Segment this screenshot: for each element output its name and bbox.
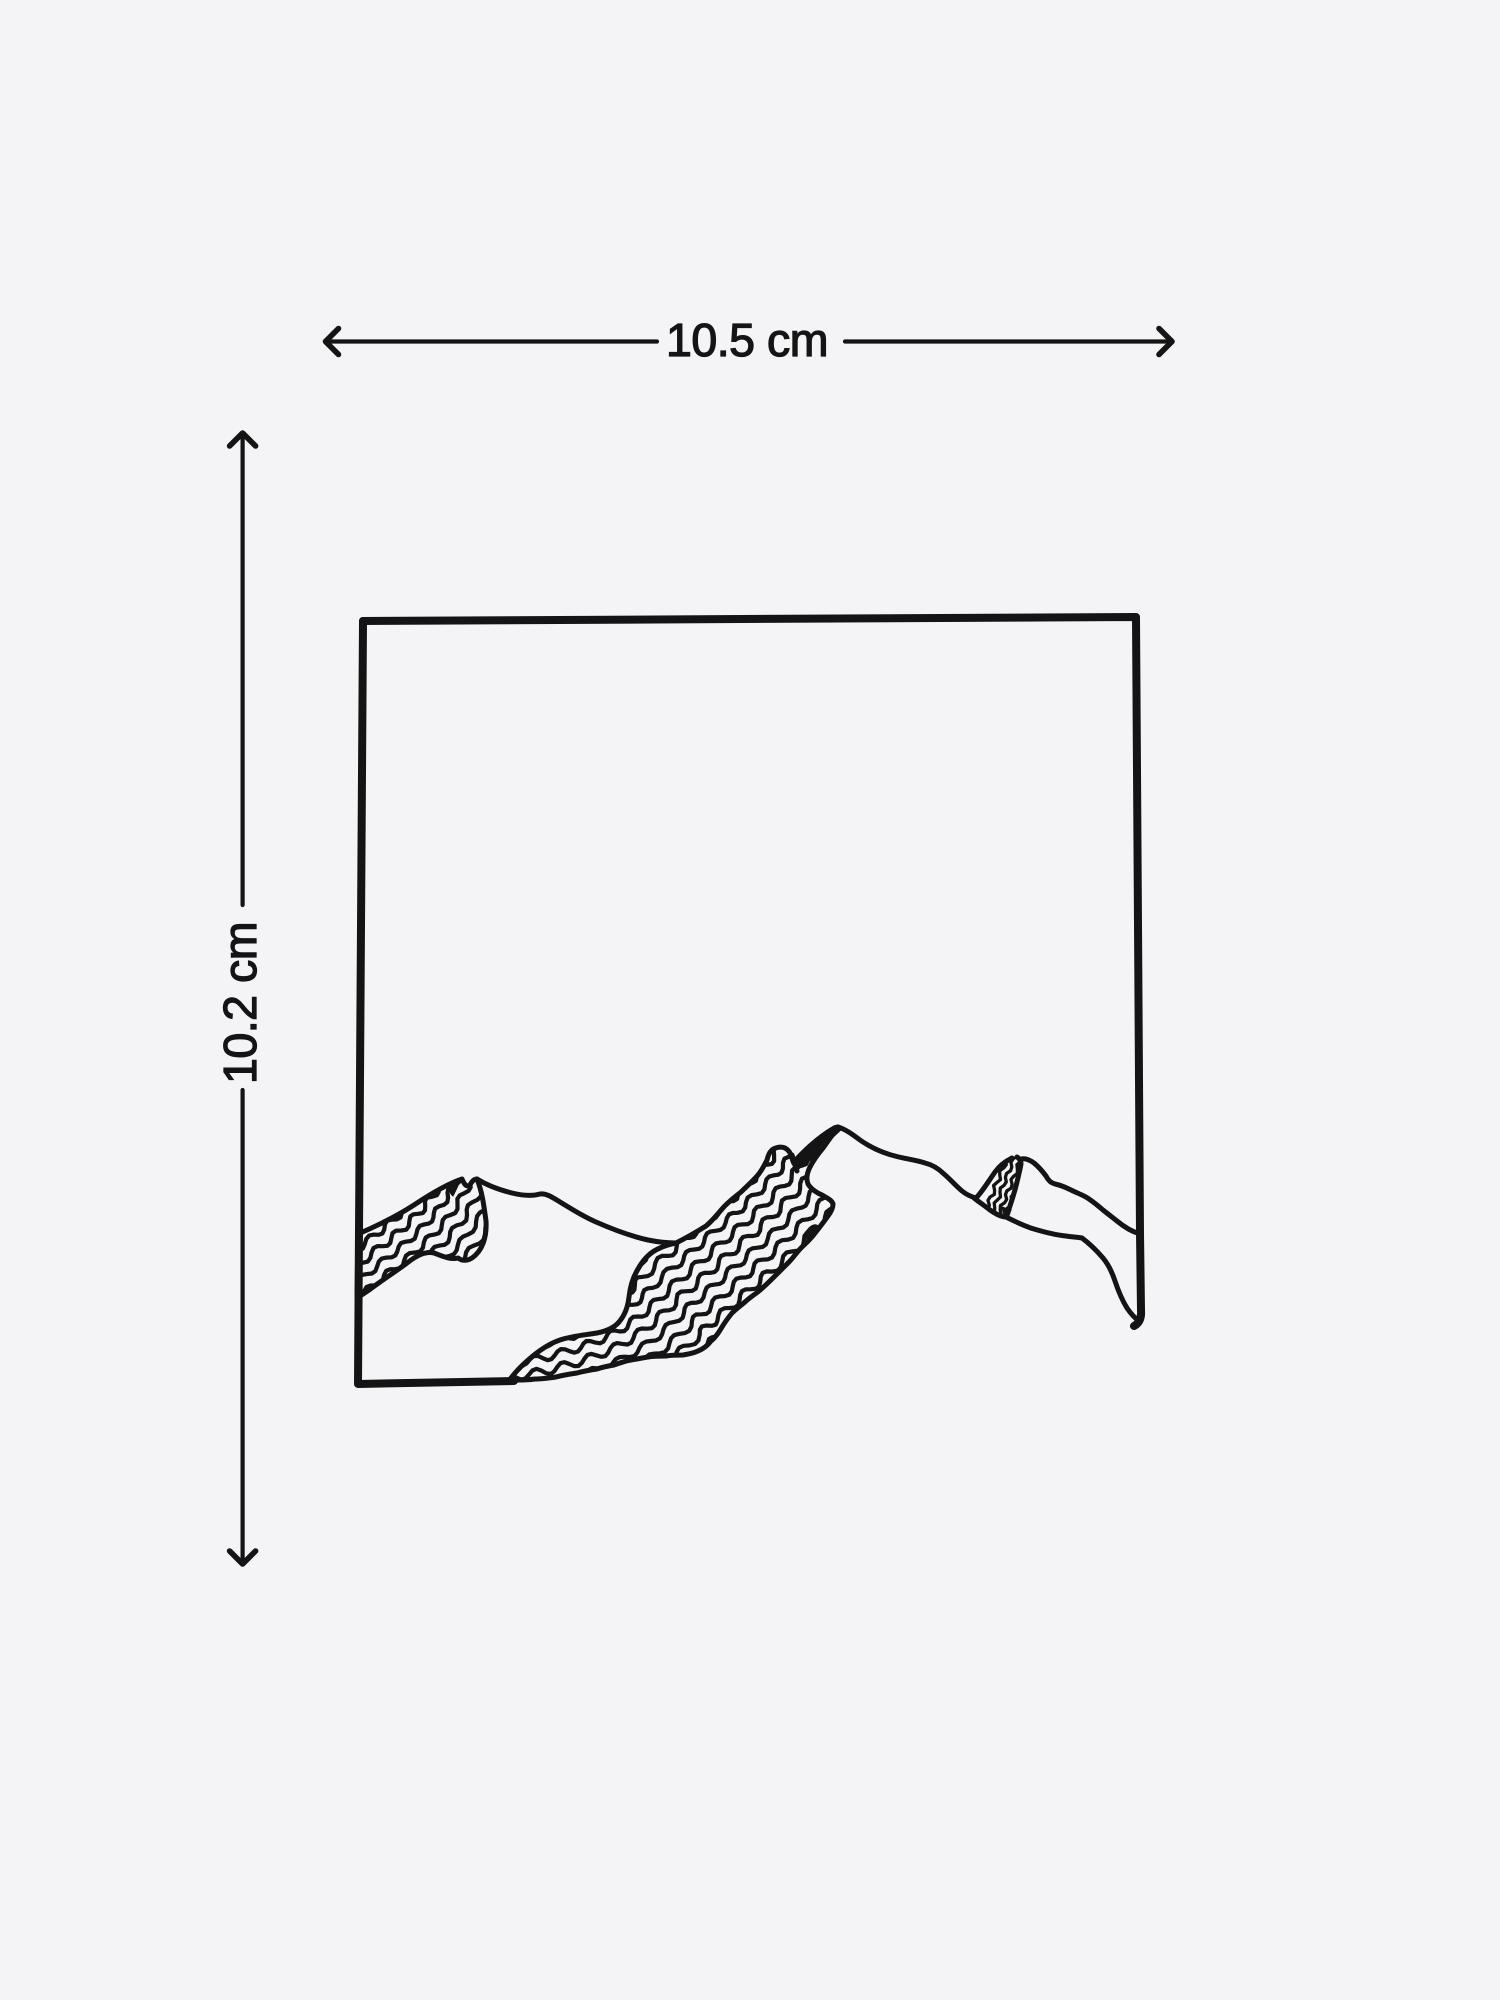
svg-text:10.2 cm: 10.2 cm bbox=[214, 922, 266, 1084]
svg-text:10.5 cm: 10.5 cm bbox=[666, 314, 828, 366]
